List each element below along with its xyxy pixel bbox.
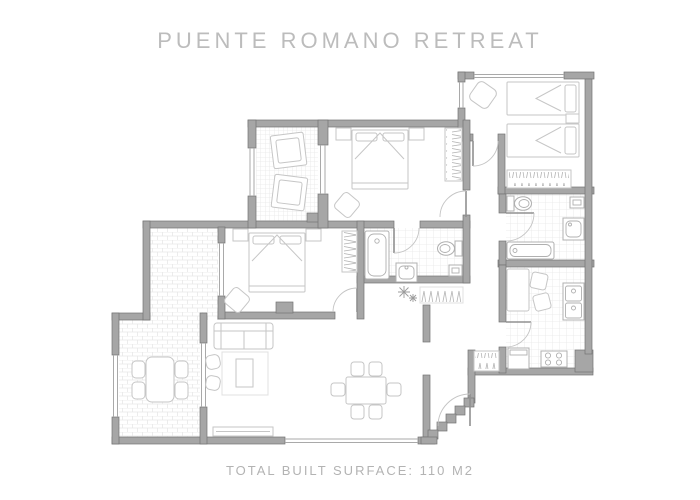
washbasin-icon <box>396 263 417 282</box>
chair-icon <box>369 362 382 376</box>
floorplan-page: PUENTE ROMANO RETREAT <box>0 0 700 500</box>
wardrobe-hangers-icon <box>445 128 462 181</box>
chair-icon <box>387 383 401 396</box>
chair-icon <box>175 382 188 399</box>
chair-icon <box>530 272 549 291</box>
chair-icon <box>132 382 145 399</box>
chair-icon <box>532 292 551 311</box>
single-bed-icon <box>507 124 579 157</box>
armchair-icon <box>205 375 221 391</box>
plant-icon <box>398 286 417 302</box>
tv-console-icon <box>213 427 273 436</box>
chair-icon <box>132 361 145 378</box>
door-swing-icon <box>333 288 357 312</box>
window-icon <box>474 75 564 78</box>
washbasin-icon <box>563 218 584 240</box>
chair-icon <box>331 383 345 396</box>
stove-icon <box>541 351 567 367</box>
coat-rack-icon <box>420 287 463 303</box>
chair-icon <box>351 405 364 419</box>
nightstand-icon <box>233 229 248 241</box>
bathtub-icon <box>507 242 554 259</box>
wardrobe-hangers-icon <box>507 170 571 188</box>
chair-icon <box>468 80 499 111</box>
sun-lounger-icon <box>270 132 307 169</box>
chair-icon <box>351 362 364 376</box>
window-icon <box>285 439 418 443</box>
sun-lounger-icon <box>271 174 308 211</box>
surface-label: TOTAL BUILT SURFACE: 110 M2 <box>0 463 700 478</box>
wardrobe-hangers-icon <box>474 351 499 371</box>
room-master-bedroom <box>223 229 357 314</box>
door-swing-icon <box>440 191 466 217</box>
armchair-icon <box>205 354 222 371</box>
double-bed-icon <box>352 130 408 189</box>
nightstand-icon <box>566 114 579 123</box>
hallway <box>398 286 499 371</box>
floor-plan-svg <box>0 0 700 500</box>
window-icon <box>250 148 254 196</box>
side-terrace-floor <box>150 228 218 320</box>
mirror-cabinet-icon <box>570 197 584 208</box>
single-bed-icon <box>507 82 579 115</box>
toilet-icon <box>507 196 532 211</box>
window-icon <box>460 82 464 108</box>
window-icon <box>202 343 206 407</box>
room-living-dining <box>205 323 401 436</box>
chair-icon <box>175 361 188 378</box>
window-icon <box>114 355 118 417</box>
coffee-table-icon <box>236 359 253 387</box>
bathtub-icon <box>365 231 389 279</box>
mirror-cabinet-icon <box>449 265 462 276</box>
nightstand-icon <box>409 128 424 140</box>
chair-icon <box>369 405 382 419</box>
kitchen-table-icon <box>507 269 529 311</box>
window-icon <box>220 243 224 296</box>
nightstand-icon <box>336 128 351 140</box>
door-swing-icon <box>473 141 498 166</box>
nightstand-icon <box>306 229 321 241</box>
dining-table-icon <box>331 362 401 419</box>
sofa-icon <box>214 323 273 349</box>
kitchen-cabinet-icon <box>508 348 529 369</box>
chair-icon <box>223 286 251 314</box>
double-bed-icon <box>249 233 305 292</box>
wardrobe-hangers-icon <box>342 231 357 272</box>
kitchen-counter-sink-icon <box>563 283 584 320</box>
chair-icon <box>333 191 361 219</box>
toilet-icon <box>438 241 463 256</box>
window-icon <box>321 145 326 194</box>
column <box>276 302 293 313</box>
room-twin-bedroom <box>468 80 579 188</box>
